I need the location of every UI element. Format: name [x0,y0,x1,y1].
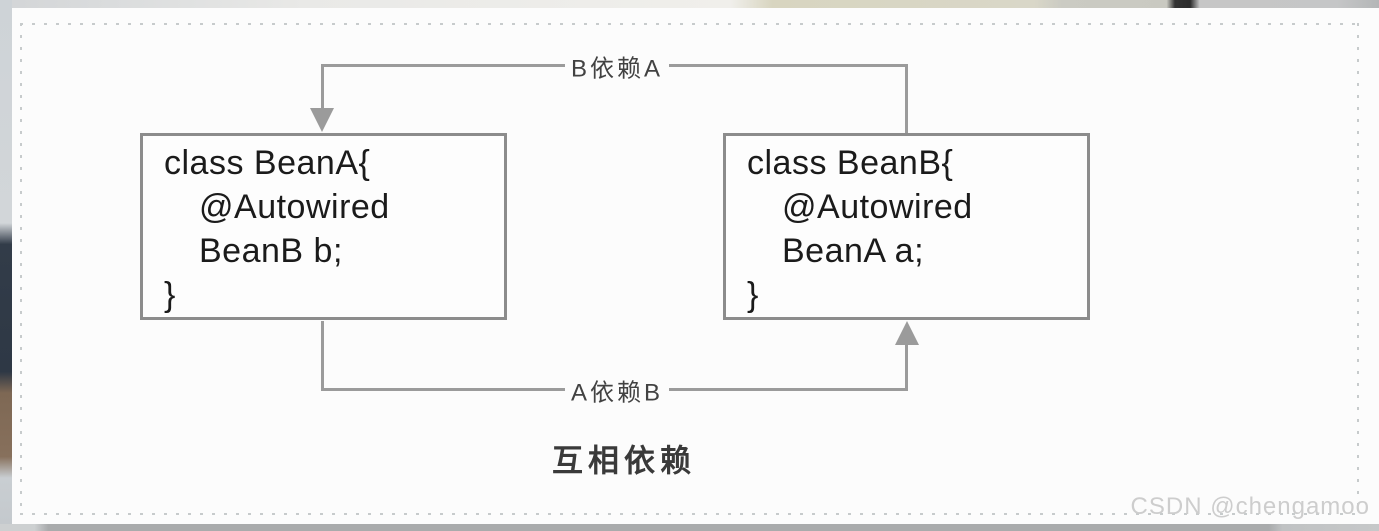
csdn-watermark: CSDN @chengamoo [1131,493,1370,521]
arrow-up-icon [895,321,919,345]
arrow-down-icon [310,108,334,132]
bean-b-line-4: } [747,273,1087,317]
video-left-edge [0,0,12,531]
connector-bottom-left-vertical [321,321,324,391]
slide-frame: B依赖A A依赖B class BeanA{ @Autowired BeanB … [0,0,1379,531]
video-bottom-edge [0,524,1379,531]
bean-a-line-2: @Autowired [199,185,504,229]
dotted-border-top [20,23,1359,25]
edge-label-b-depends-a: B依赖A [565,49,669,84]
connector-bottom-right-vertical [905,344,908,391]
dotted-border-right [1357,23,1359,515]
diagram-caption: 互相依赖 [552,436,696,481]
bean-b-line-1: class BeanB{ [747,141,1087,185]
video-top-edge [0,0,1379,8]
bean-a-line-3: BeanB b; [199,229,504,273]
edge-label-a-depends-b: A依赖B [565,373,669,408]
connector-top-right-vertical [905,64,908,134]
bean-a-line-1: class BeanA{ [164,141,504,185]
bean-a-line-4: } [164,273,504,317]
dotted-border-left [20,23,22,515]
bean-b-line-2: @Autowired [782,185,1087,229]
bean-a-code-box: class BeanA{ @Autowired BeanB b; } [140,133,507,320]
bean-b-code-box: class BeanB{ @Autowired BeanA a; } [723,133,1090,320]
connector-top-left-vertical [321,64,324,110]
bean-b-line-3: BeanA a; [782,229,1087,273]
